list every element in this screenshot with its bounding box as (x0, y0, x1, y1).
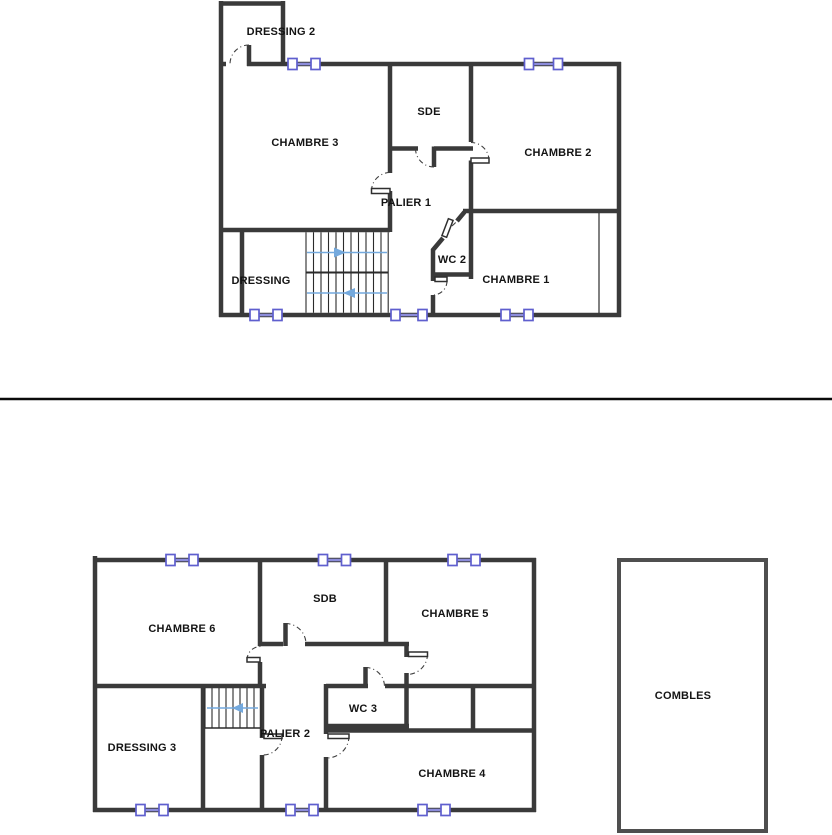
lower-floor-plan: CHAMBRE 6 SDB CHAMBRE 5 DRESSING 3 PALIE… (93, 555, 536, 816)
staircase (205, 688, 261, 728)
floor-plan-page: DRESSING 2 CHAMBRE 3 SDE CHAMBRE 2 PALIE… (0, 0, 832, 835)
room-label-chambre-1: CHAMBRE 1 (482, 274, 549, 286)
window-icon (418, 805, 450, 816)
window-icon (448, 555, 480, 566)
window-icon (250, 310, 282, 321)
door-leaf (409, 652, 428, 657)
window-icon (525, 59, 563, 70)
stair-arrow-down-icon (232, 703, 243, 713)
door-leaf (372, 189, 391, 194)
walls-path (219, 1, 621, 317)
room-label-dressing-3: DRESSING 3 (108, 742, 177, 754)
window-icon (286, 805, 318, 816)
room-label-chambre-6: CHAMBRE 6 (148, 623, 215, 635)
staircase (306, 232, 388, 313)
stair-arrow-down-icon (343, 288, 355, 298)
room-label-chambre-5: CHAMBRE 5 (421, 608, 488, 620)
door-leaf (442, 219, 453, 238)
window-icon (288, 59, 320, 70)
room-label-sde: SDE (417, 106, 440, 118)
room-label-combles: COMBLES (655, 690, 711, 702)
room-label-sdb: SDB (313, 593, 337, 605)
door-leaf (247, 658, 260, 663)
room-label-dressing: DRESSING (231, 275, 290, 287)
floor-plan-drawing: DRESSING 2 CHAMBRE 3 SDE CHAMBRE 2 PALIE… (0, 0, 832, 835)
attic-plan: COMBLES (619, 560, 766, 831)
room-label-palier-1: PALIER 1 (381, 197, 431, 209)
door-leaf (328, 734, 349, 739)
window-icon (166, 555, 198, 566)
room-label-palier-2: PALIER 2 (260, 728, 310, 740)
door-leaf (471, 158, 489, 163)
room-label-chambre-3: CHAMBRE 3 (271, 137, 338, 149)
room-label-wc-2: WC 2 (438, 254, 466, 266)
window-icon (319, 555, 351, 566)
window-icon (501, 310, 533, 321)
room-label-wc-3: WC 3 (349, 703, 377, 715)
window-icon (136, 805, 168, 816)
stair-arrow-up-icon (334, 248, 346, 258)
door-leaf (435, 277, 447, 282)
window-icon (391, 310, 427, 321)
room-label-chambre-4: CHAMBRE 4 (418, 768, 486, 780)
room-label-chambre-2: CHAMBRE 2 (524, 147, 591, 159)
upper-floor-plan: DRESSING 2 CHAMBRE 3 SDE CHAMBRE 2 PALIE… (219, 1, 621, 321)
room-label-dressing-2: DRESSING 2 (247, 26, 316, 38)
